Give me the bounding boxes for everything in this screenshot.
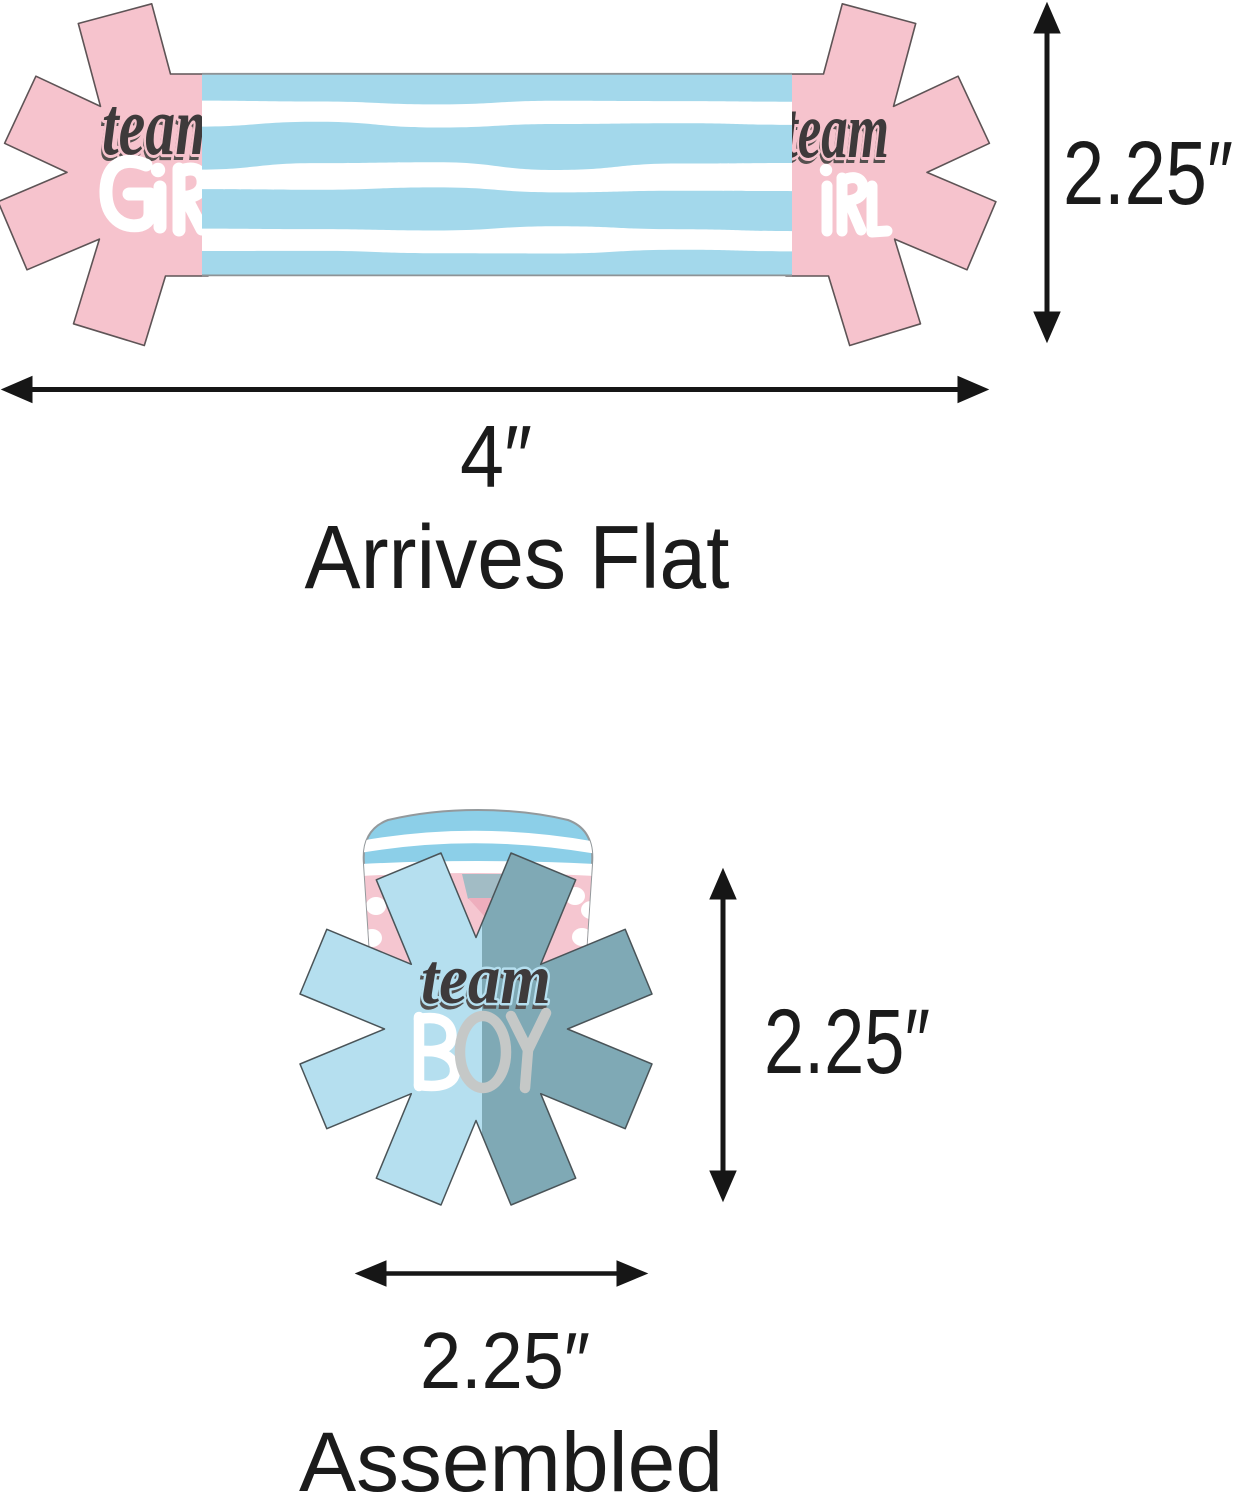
svg-text:team: team — [421, 939, 551, 1019]
svg-text:4″: 4″ — [460, 407, 532, 506]
svg-text:team: team — [783, 87, 889, 175]
svg-text:2.25″: 2.25″ — [420, 1316, 590, 1405]
svg-text:Assembled: Assembled — [299, 1415, 723, 1500]
svg-text:2.25″: 2.25″ — [764, 991, 930, 1093]
svg-text:2.25″: 2.25″ — [1063, 124, 1233, 224]
svg-text:Arrives Flat: Arrives Flat — [305, 508, 730, 608]
